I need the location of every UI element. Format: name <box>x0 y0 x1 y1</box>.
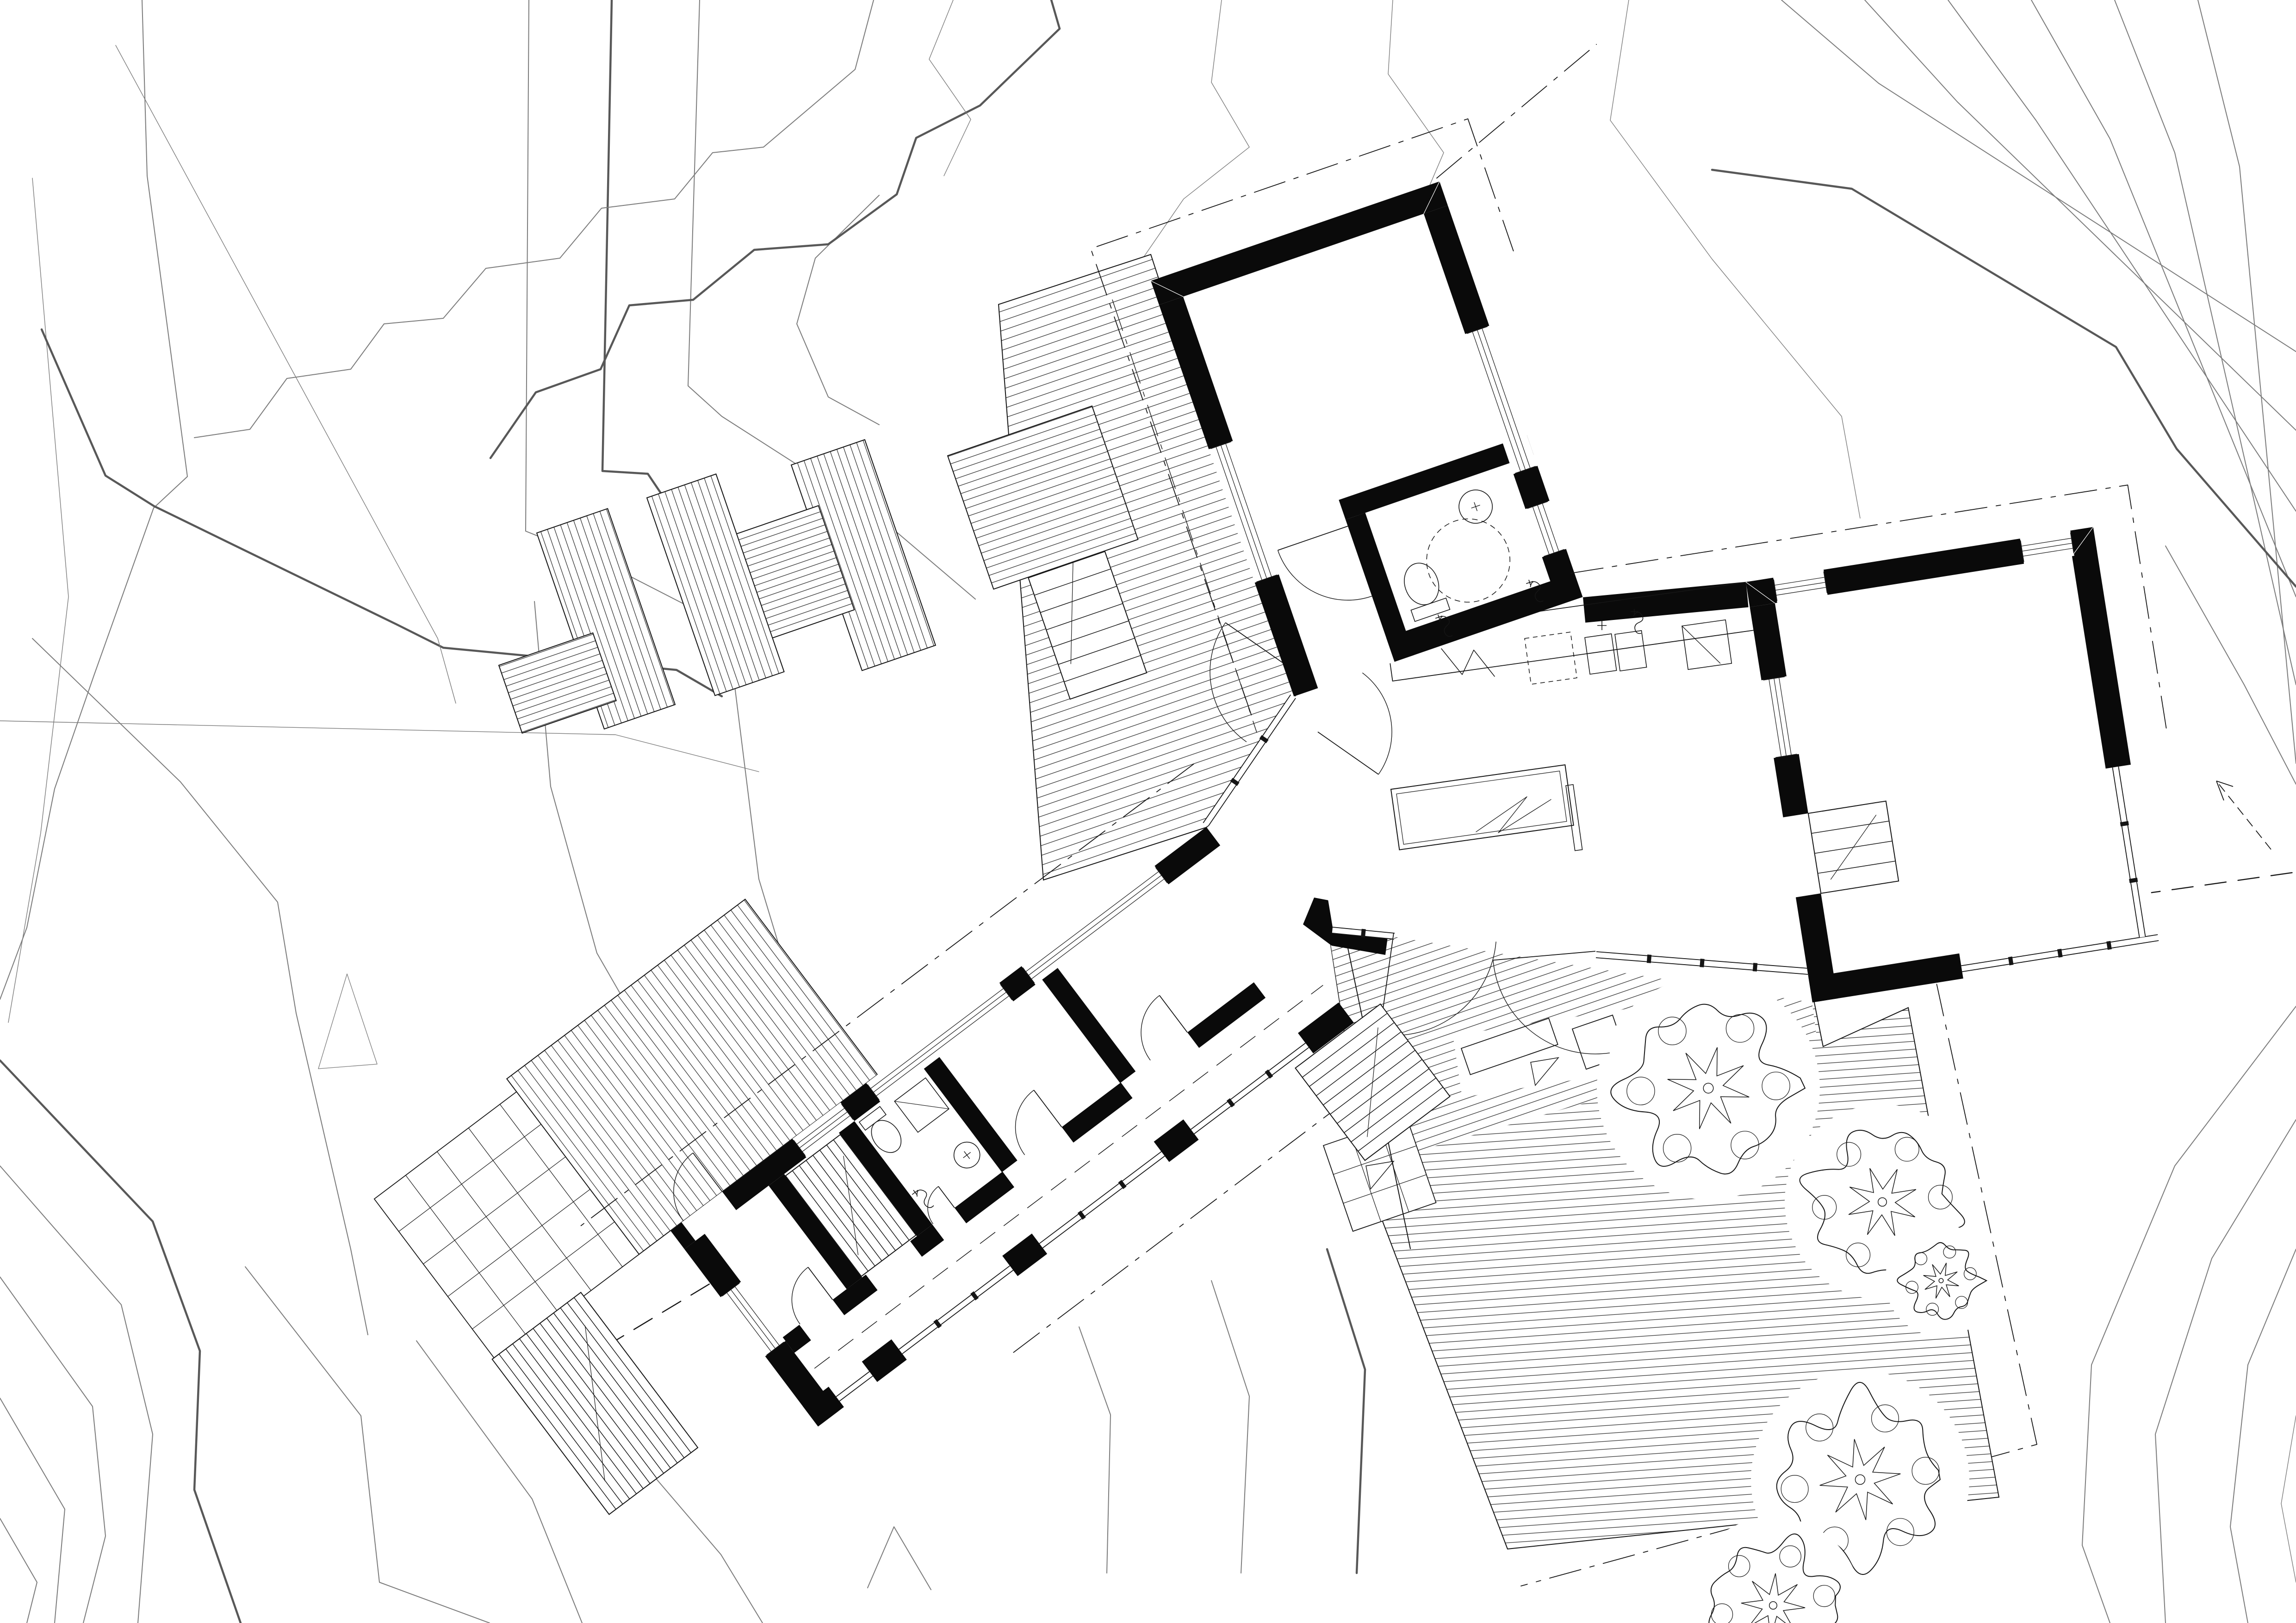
floor-plan-canvas <box>0 0 2296 1623</box>
floor-plan-sheet <box>0 0 2296 1623</box>
wing-lower <box>363 632 1450 1623</box>
